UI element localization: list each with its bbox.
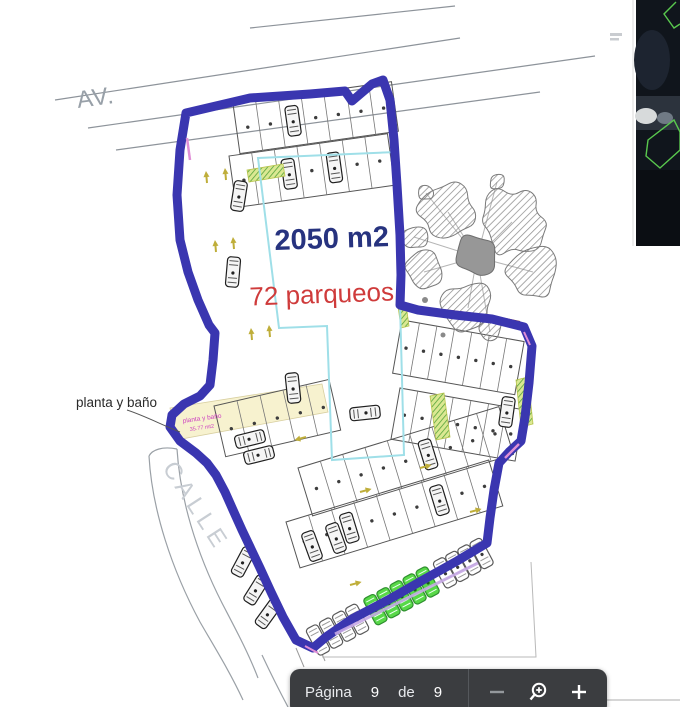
viewer-toolbar: Página 9 de 9 [290,669,607,707]
car-icon [301,530,323,563]
flow-arrow-icon [212,240,219,252]
of-word: de [398,684,415,701]
car-icon [326,152,343,184]
zoom-in-button[interactable] [565,678,593,706]
flow-arrow-icon [230,237,237,249]
green-strip [430,393,450,440]
page-indicator: Página 9 de 9 [290,684,468,701]
car-icon [498,396,515,428]
car-icon [429,484,450,516]
green-strip [247,164,285,182]
flow-arrow-icon [248,328,255,340]
zoom-in-plus-icon [569,682,589,702]
car-icon [225,256,241,287]
tree-canopy [405,250,442,289]
parking-count-text: 72 parqueos [249,276,395,311]
zoom-controls [469,677,607,707]
zoom-out-button[interactable] [483,678,511,706]
pdf-preview-window: AV. CALLE 2050 m2 72 parqueos planta y b… [0,0,680,707]
zoom-fit-button[interactable] [523,677,553,707]
flow-arrow-icon [266,325,273,337]
flow-arrow-icon [222,168,229,180]
page-word: Página [305,684,352,701]
area-size-text: 2050 m2 [274,221,390,257]
avenue-road-lines [55,6,595,150]
planta-banio-label: planta y baño [76,395,157,410]
avenue-label: AV. [75,82,116,114]
flow-arrow-icon [469,506,482,515]
total-pages-value: 9 [434,684,442,701]
satellite-thumbnail [610,0,680,246]
flow-arrow-icon [349,579,362,588]
zoom-magnifier-plus-icon [527,681,549,703]
flow-arrow-icon [203,171,210,183]
tree-canopy [505,246,556,297]
tree-trunk [456,235,495,275]
flow-arrow-icon [359,486,372,495]
tree-canopy [419,185,434,199]
car-icon [349,405,380,421]
site-plan-page: AV. CALLE 2050 m2 72 parqueos planta y b… [0,0,680,707]
car-icon [285,372,301,403]
zoom-out-minus-icon [487,682,507,702]
tree-canopy [402,227,428,248]
car-icon [285,105,302,137]
car-icon [234,429,266,449]
tree-canopy [490,174,504,188]
current-page-value[interactable]: 9 [371,684,379,701]
